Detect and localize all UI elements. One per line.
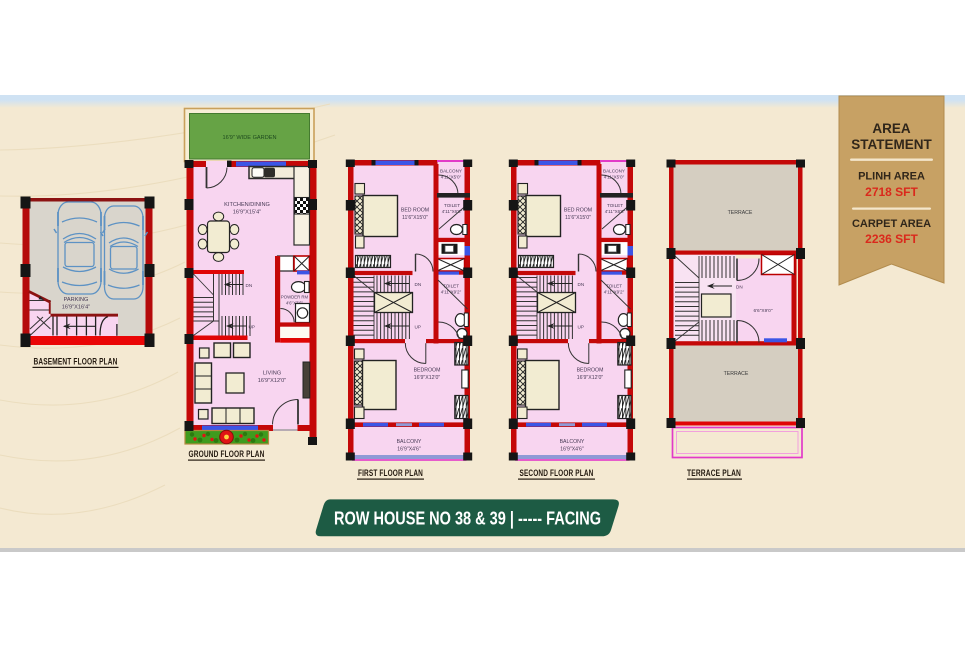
svg-text:UP: UP [415,325,421,330]
svg-text:AREA: AREA [872,121,911,136]
svg-text:UP: UP [249,325,255,330]
svg-text:4'11"X5'0": 4'11"X5'0" [441,175,462,180]
svg-text:16'9"X4'6": 16'9"X4'6" [397,447,421,453]
svg-text:POWDER RM: POWDER RM [281,295,309,300]
svg-text:DN: DN [736,285,743,290]
svg-text:TERRACE: TERRACE [728,210,753,216]
svg-text:ROW HOUSE NO 38 & 39 | ----- F: ROW HOUSE NO 38 & 39 | ----- FACING [334,508,601,529]
svg-text:GROUND FLOOR PLAN: GROUND FLOOR PLAN [189,449,265,460]
svg-text:STATEMENT: STATEMENT [851,137,932,152]
svg-text:BALCONY: BALCONY [397,439,422,445]
svg-text:BED ROOM: BED ROOM [401,208,429,214]
svg-text:BASEMENT FLOOR PLAN: BASEMENT FLOOR PLAN [34,357,118,368]
svg-text:4'11"X9'2": 4'11"X9'2" [441,290,462,295]
svg-text:BEDROOM: BEDROOM [414,368,441,374]
svg-text:6'6"X9'0": 6'6"X9'0" [753,308,772,314]
svg-text:BALCONY: BALCONY [440,169,462,174]
svg-text:PARKING: PARKING [64,297,89,303]
svg-text:2718 SFT: 2718 SFT [865,185,918,199]
svg-text:16'9"X16'4": 16'9"X16'4" [62,305,91,311]
svg-text:11'6"X15'0": 11'6"X15'0" [402,215,428,221]
svg-text:CARPET AREA: CARPET AREA [852,218,931,230]
svg-text:TERRACE: TERRACE [724,371,749,377]
svg-text:16'9"X12'0": 16'9"X12'0" [414,375,441,381]
svg-text:DN: DN [415,282,422,287]
svg-text:2236 SFT: 2236 SFT [865,232,918,246]
svg-text:16'9"X15'4": 16'9"X15'4" [233,210,262,216]
svg-text:PLINH AREA: PLINH AREA [858,171,925,183]
svg-text:LIVING: LIVING [263,371,281,377]
svg-text:TERRACE PLAN: TERRACE PLAN [687,468,741,479]
svg-text:FIRST FLOOR PLAN: FIRST FLOOR PLAN [358,468,423,479]
svg-text:DN: DN [246,283,253,288]
svg-text:16'9"X12'0": 16'9"X12'0" [258,378,287,384]
svg-text:TOILET: TOILET [444,203,460,208]
svg-text:KITCHEN/DINING: KITCHEN/DINING [224,202,270,208]
svg-text:SECOND FLOOR PLAN: SECOND FLOOR PLAN [520,468,594,479]
svg-text:16'9" WIDE GARDEN: 16'9" WIDE GARDEN [222,135,276,141]
